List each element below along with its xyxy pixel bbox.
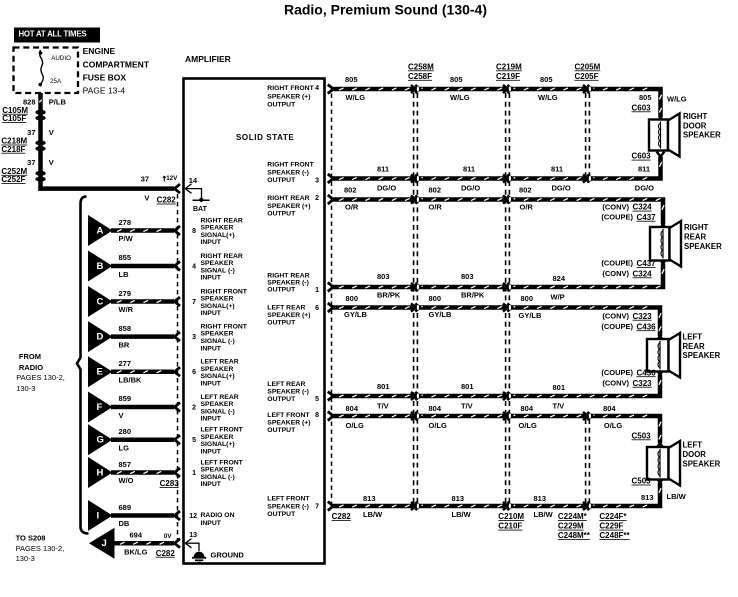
svg-text:804: 804 — [346, 404, 359, 413]
svg-text:OUTPUT: OUTPUT — [267, 102, 296, 109]
svg-text:805: 805 — [345, 75, 358, 84]
svg-text:RIGHT FRONT: RIGHT FRONT — [201, 288, 248, 295]
svg-text:SPEAKER (+): SPEAKER (+) — [267, 312, 310, 319]
svg-text:C210F: C210F — [498, 522, 522, 531]
svg-text:COMPARTMENT: COMPARTMENT — [83, 59, 150, 69]
svg-text:LEFT: LEFT — [683, 332, 703, 341]
svg-text:7: 7 — [315, 504, 319, 511]
svg-text:W/R: W/R — [119, 305, 134, 314]
svg-text:ENGINE: ENGINE — [83, 46, 116, 56]
svg-text:INPUT: INPUT — [201, 310, 222, 317]
svg-text:37: 37 — [141, 175, 149, 184]
svg-text:1: 1 — [192, 470, 196, 477]
svg-text:5: 5 — [192, 437, 196, 444]
svg-text:805: 805 — [450, 75, 463, 84]
svg-text:277: 277 — [119, 359, 132, 368]
svg-text:RADIO ON: RADIO ON — [201, 512, 235, 519]
svg-text:I: I — [97, 510, 100, 521]
svg-text:T/V: T/V — [377, 401, 389, 410]
svg-text:(CONV): (CONV) — [602, 312, 629, 321]
svg-text:803: 803 — [377, 272, 390, 281]
svg-text:813: 813 — [363, 494, 376, 503]
svg-text:RIGHT: RIGHT — [683, 112, 707, 121]
svg-text:SPEAKER: SPEAKER — [201, 434, 234, 441]
svg-text:RIGHT REAR: RIGHT REAR — [201, 217, 243, 224]
svg-text:INPUT: INPUT — [201, 481, 222, 488]
svg-text:803: 803 — [461, 272, 474, 281]
svg-text:4: 4 — [315, 85, 319, 92]
svg-text:C324: C324 — [633, 269, 653, 278]
svg-text:B: B — [97, 261, 104, 272]
svg-text:DG/O: DG/O — [552, 184, 571, 193]
svg-text:802: 802 — [519, 185, 532, 194]
svg-text:O/R: O/R — [429, 203, 443, 212]
svg-text:C218F: C218F — [1, 145, 25, 154]
svg-text:804: 804 — [603, 404, 616, 413]
svg-text:INPUT: INPUT — [201, 239, 222, 246]
svg-text:C603: C603 — [632, 152, 652, 161]
svg-text:Radio, Premium Sound (130-4): Radio, Premium Sound (130-4) — [284, 2, 487, 18]
svg-text:LEFT FRONT: LEFT FRONT — [267, 496, 310, 503]
svg-text:LEFT FRONT: LEFT FRONT — [201, 459, 244, 466]
svg-text:REAR: REAR — [683, 342, 705, 351]
svg-text:V: V — [119, 411, 124, 420]
svg-text:5: 5 — [315, 396, 319, 403]
svg-text:TO S208: TO S208 — [16, 534, 46, 543]
svg-text:LEFT REAR: LEFT REAR — [267, 381, 305, 388]
svg-text:801: 801 — [553, 383, 566, 392]
svg-text:INPUT: INPUT — [201, 275, 222, 282]
svg-text:OUTPUT: OUTPUT — [267, 287, 296, 294]
svg-text:RIGHT: RIGHT — [684, 223, 708, 232]
svg-text:694: 694 — [130, 531, 143, 540]
svg-text:LB/W: LB/W — [363, 510, 383, 519]
svg-text:3: 3 — [192, 334, 196, 341]
svg-text:W/LG: W/LG — [538, 93, 558, 102]
svg-text:C205M: C205M — [575, 62, 601, 71]
svg-text:INPUT: INPUT — [201, 416, 222, 423]
svg-text:SIGNAL(+): SIGNAL(+) — [201, 373, 235, 380]
svg-text:J: J — [102, 538, 107, 549]
svg-text:GY/LB: GY/LB — [344, 310, 368, 319]
svg-text:LEFT FRONT: LEFT FRONT — [267, 412, 310, 419]
svg-text:858: 858 — [119, 324, 132, 333]
svg-text:12: 12 — [189, 513, 197, 520]
svg-text:SPEAKER: SPEAKER — [201, 366, 234, 373]
svg-text:AUDIO: AUDIO — [51, 55, 71, 62]
svg-text:14: 14 — [189, 176, 198, 185]
svg-text:LG: LG — [119, 443, 130, 452]
svg-text:SPEAKER (-): SPEAKER (-) — [267, 280, 309, 287]
svg-text:OUTPUT: OUTPUT — [267, 320, 296, 327]
svg-text:RIGHT REAR: RIGHT REAR — [267, 195, 309, 202]
svg-text:O/R: O/R — [345, 203, 359, 212]
svg-text:C: C — [97, 296, 104, 307]
svg-text:C437: C437 — [637, 213, 657, 222]
svg-text:INPUT: INPUT — [201, 380, 222, 387]
svg-text:DG/O: DG/O — [635, 184, 654, 193]
svg-text:8: 8 — [192, 228, 196, 235]
svg-text:O/LG: O/LG — [346, 421, 364, 430]
svg-text:(COUPE): (COUPE) — [601, 212, 633, 221]
svg-text:C283: C283 — [160, 479, 180, 488]
svg-text:811: 811 — [377, 165, 389, 174]
svg-text:F: F — [97, 402, 103, 413]
svg-text:PAGES 130-2,: PAGES 130-2, — [16, 373, 65, 382]
svg-text:FROM: FROM — [19, 352, 41, 361]
svg-text:DG/O: DG/O — [377, 184, 396, 193]
svg-text:801: 801 — [461, 382, 474, 391]
svg-text:4: 4 — [192, 263, 196, 270]
svg-text:C219M: C219M — [496, 62, 522, 71]
svg-text:SPEAKER: SPEAKER — [201, 260, 234, 267]
svg-text:SPEAKER: SPEAKER — [201, 331, 234, 338]
svg-text:C323: C323 — [633, 312, 653, 321]
svg-text:DOOR: DOOR — [683, 121, 707, 130]
svg-text:SPEAKER: SPEAKER — [683, 459, 721, 468]
svg-text:BR: BR — [119, 340, 130, 349]
svg-text:37: 37 — [27, 158, 35, 167]
svg-text:SPEAKER (-): SPEAKER (-) — [267, 503, 309, 510]
svg-text:C503: C503 — [632, 431, 652, 440]
svg-text:LB/W: LB/W — [534, 510, 554, 519]
svg-text:RIGHT FRONT: RIGHT FRONT — [267, 161, 314, 168]
svg-text:1: 1 — [315, 287, 319, 294]
svg-text:SIGNAL(+): SIGNAL(+) — [201, 232, 235, 239]
svg-text:859: 859 — [119, 394, 132, 403]
svg-text:LEFT: LEFT — [683, 441, 703, 450]
svg-text:C248M**: C248M** — [558, 531, 591, 540]
svg-text:BR/PK: BR/PK — [461, 291, 485, 300]
svg-text:(COUPE): (COUPE) — [601, 322, 633, 331]
svg-text:SPEAKER: SPEAKER — [201, 225, 234, 232]
svg-text:BAT: BAT — [193, 206, 208, 213]
svg-text:G: G — [97, 435, 104, 446]
svg-text:C258F: C258F — [408, 72, 432, 81]
svg-text:SIGNAL(+): SIGNAL(+) — [201, 303, 235, 310]
svg-text:C252F: C252F — [1, 175, 25, 184]
svg-text:C229F: C229F — [599, 522, 623, 531]
svg-text:O/R: O/R — [520, 203, 534, 212]
svg-text:SPEAKER (-): SPEAKER (-) — [267, 169, 309, 176]
svg-text:GY/LB: GY/LB — [429, 310, 453, 319]
svg-text:C205F: C205F — [575, 72, 599, 81]
svg-text:SPEAKER: SPEAKER — [201, 467, 234, 474]
svg-text:C282: C282 — [332, 512, 352, 521]
svg-text:O/LG: O/LG — [429, 421, 447, 430]
svg-text:C224M*: C224M* — [558, 512, 588, 521]
svg-text:O/LG: O/LG — [604, 421, 622, 430]
svg-text:T/V: T/V — [461, 401, 473, 410]
svg-text:(CONV): (CONV) — [602, 269, 629, 278]
svg-text:BK/LG: BK/LG — [124, 548, 147, 557]
svg-text:V: V — [49, 158, 54, 167]
svg-text:7: 7 — [192, 299, 196, 306]
svg-text:D: D — [97, 332, 104, 343]
svg-text:SOLID STATE: SOLID STATE — [236, 133, 294, 142]
svg-text:SPEAKER: SPEAKER — [683, 351, 721, 360]
svg-text:RIGHT REAR: RIGHT REAR — [201, 253, 243, 260]
svg-text:RADIO: RADIO — [19, 363, 43, 372]
svg-text:E: E — [97, 367, 103, 378]
svg-text:SPEAKER (+): SPEAKER (+) — [267, 93, 310, 100]
svg-text:SPEAKER: SPEAKER — [684, 242, 722, 251]
svg-text:C105F: C105F — [2, 114, 26, 123]
svg-text:LB/W: LB/W — [452, 510, 472, 519]
svg-text:O/LG: O/LG — [519, 421, 537, 430]
svg-text:800: 800 — [521, 294, 534, 303]
svg-text:130-3: 130-3 — [16, 554, 35, 563]
svg-text:SIGNAL (-): SIGNAL (-) — [201, 408, 235, 415]
svg-text:37: 37 — [27, 128, 35, 137]
svg-text:LB/W: LB/W — [667, 492, 687, 501]
svg-text:SIGNAL(+): SIGNAL(+) — [201, 441, 235, 448]
svg-text:800: 800 — [429, 294, 442, 303]
svg-text:W/LG: W/LG — [346, 93, 366, 102]
svg-text:(COUPE): (COUPE) — [601, 259, 633, 268]
svg-text:H: H — [97, 467, 104, 478]
svg-text:689: 689 — [119, 503, 132, 512]
svg-text:LEFT REAR: LEFT REAR — [201, 394, 239, 401]
svg-text:813: 813 — [452, 494, 465, 503]
svg-text:A: A — [97, 225, 104, 236]
svg-text:130-3: 130-3 — [16, 384, 35, 393]
svg-text:OUTPUT: OUTPUT — [267, 511, 296, 518]
svg-text:FUSE BOX: FUSE BOX — [83, 73, 127, 83]
svg-text:805: 805 — [540, 75, 553, 84]
svg-text:RIGHT FRONT: RIGHT FRONT — [267, 85, 314, 92]
svg-text:801: 801 — [377, 382, 390, 391]
svg-text:C282: C282 — [157, 196, 177, 205]
svg-text:AMPLIFIER: AMPLIFIER — [185, 54, 231, 64]
svg-text:W/LG: W/LG — [667, 94, 687, 103]
svg-text:SIGNAL (-): SIGNAL (-) — [201, 474, 235, 481]
svg-text:SPEAKER: SPEAKER — [201, 401, 234, 408]
svg-text:C224F*: C224F* — [599, 512, 627, 521]
svg-text:OUTPUT: OUTPUT — [267, 177, 296, 184]
svg-text:SIGNAL (-): SIGNAL (-) — [201, 338, 235, 345]
svg-text:8: 8 — [315, 412, 319, 419]
svg-text:HOT AT ALL TIMES: HOT AT ALL TIMES — [19, 30, 87, 39]
svg-text:802: 802 — [344, 185, 357, 194]
svg-text:C436: C436 — [637, 368, 657, 377]
svg-text:6: 6 — [192, 369, 196, 376]
svg-text:C503: C503 — [632, 477, 652, 486]
svg-text:813: 813 — [534, 494, 547, 503]
svg-text:804: 804 — [429, 404, 442, 413]
svg-text:RIGHT REAR: RIGHT REAR — [267, 272, 309, 279]
svg-text:C437: C437 — [637, 259, 657, 268]
svg-text:3: 3 — [315, 177, 319, 184]
svg-text:13: 13 — [189, 532, 197, 539]
svg-text:SPEAKER (-): SPEAKER (-) — [267, 388, 309, 395]
svg-text:280: 280 — [119, 427, 132, 436]
svg-text:C229M: C229M — [558, 522, 584, 531]
svg-text:824: 824 — [553, 274, 566, 283]
svg-text:C258M: C258M — [408, 62, 434, 71]
svg-text:SIGNAL (-): SIGNAL (-) — [201, 267, 235, 274]
svg-text:SPEAKER: SPEAKER — [201, 296, 234, 303]
svg-text:0V: 0V — [164, 533, 172, 540]
svg-text:REAR: REAR — [684, 232, 706, 241]
svg-text:857: 857 — [119, 460, 132, 469]
svg-text:W/P: W/P — [551, 292, 565, 301]
svg-text:INPUT: INPUT — [201, 345, 222, 352]
svg-text:C436: C436 — [637, 322, 657, 331]
svg-text:PAGE 13-4: PAGE 13-4 — [83, 86, 126, 96]
svg-text:C248F**: C248F** — [599, 531, 630, 540]
svg-text:25A: 25A — [50, 78, 62, 85]
svg-text:OUTPUT: OUTPUT — [267, 396, 296, 403]
svg-text:OUTPUT: OUTPUT — [267, 427, 296, 434]
svg-text:INPUT: INPUT — [201, 448, 222, 455]
svg-text:6: 6 — [315, 305, 319, 312]
svg-text:811: 811 — [551, 165, 563, 174]
svg-text:804: 804 — [521, 404, 534, 413]
svg-text:DG/O: DG/O — [461, 184, 480, 193]
svg-text:C323: C323 — [633, 379, 653, 388]
svg-text:800: 800 — [346, 294, 359, 303]
svg-text:C219F: C219F — [496, 72, 520, 81]
svg-text:SPEAKER (+): SPEAKER (+) — [267, 419, 310, 426]
svg-text:SPEAKER (+): SPEAKER (+) — [267, 203, 310, 210]
svg-text:DOOR: DOOR — [683, 450, 707, 459]
svg-text:P/W: P/W — [119, 234, 134, 243]
svg-text:V: V — [49, 128, 54, 137]
svg-text:805: 805 — [639, 93, 652, 102]
svg-text:BR/PK: BR/PK — [377, 291, 401, 300]
svg-text:LB: LB — [119, 270, 130, 279]
svg-text:V: V — [144, 193, 149, 202]
svg-text:W/O: W/O — [119, 476, 134, 485]
svg-text:278: 278 — [119, 218, 132, 227]
svg-text:802: 802 — [429, 185, 442, 194]
svg-text:813: 813 — [641, 493, 654, 502]
svg-text:12V: 12V — [166, 175, 178, 182]
svg-text:INPUT: INPUT — [201, 520, 222, 527]
svg-text:C282: C282 — [156, 549, 176, 558]
svg-text:W/LG: W/LG — [450, 93, 470, 102]
svg-text:LEFT FRONT: LEFT FRONT — [201, 427, 244, 434]
svg-text:2: 2 — [315, 195, 319, 202]
svg-text:(CONV): (CONV) — [602, 379, 629, 388]
svg-text:(COUPE): (COUPE) — [601, 368, 633, 377]
svg-text:GY/LB: GY/LB — [519, 311, 543, 320]
svg-text:LB/BK: LB/BK — [119, 375, 142, 384]
svg-text:SPEAKER: SPEAKER — [683, 131, 721, 140]
svg-text:811: 811 — [463, 165, 475, 174]
svg-text:2: 2 — [192, 404, 196, 411]
svg-text:GROUND: GROUND — [211, 551, 245, 560]
svg-text:C603: C603 — [632, 103, 652, 112]
svg-text:T/V: T/V — [553, 401, 565, 410]
svg-text:P/LB: P/LB — [49, 97, 67, 106]
svg-text:C324: C324 — [633, 203, 653, 212]
svg-text:C210M: C210M — [498, 512, 524, 521]
svg-text:RIGHT FRONT: RIGHT FRONT — [201, 323, 248, 330]
svg-text:811: 811 — [638, 165, 650, 174]
svg-text:DB: DB — [119, 519, 130, 528]
svg-text:LEFT REAR: LEFT REAR — [201, 359, 239, 366]
svg-text:LEFT REAR: LEFT REAR — [267, 305, 305, 312]
svg-text:PAGES 130-2,: PAGES 130-2, — [16, 544, 65, 553]
svg-text:(CONV): (CONV) — [602, 202, 629, 211]
svg-text:OUTPUT: OUTPUT — [267, 211, 296, 218]
svg-text:855: 855 — [119, 253, 132, 262]
svg-text:279: 279 — [119, 289, 132, 298]
